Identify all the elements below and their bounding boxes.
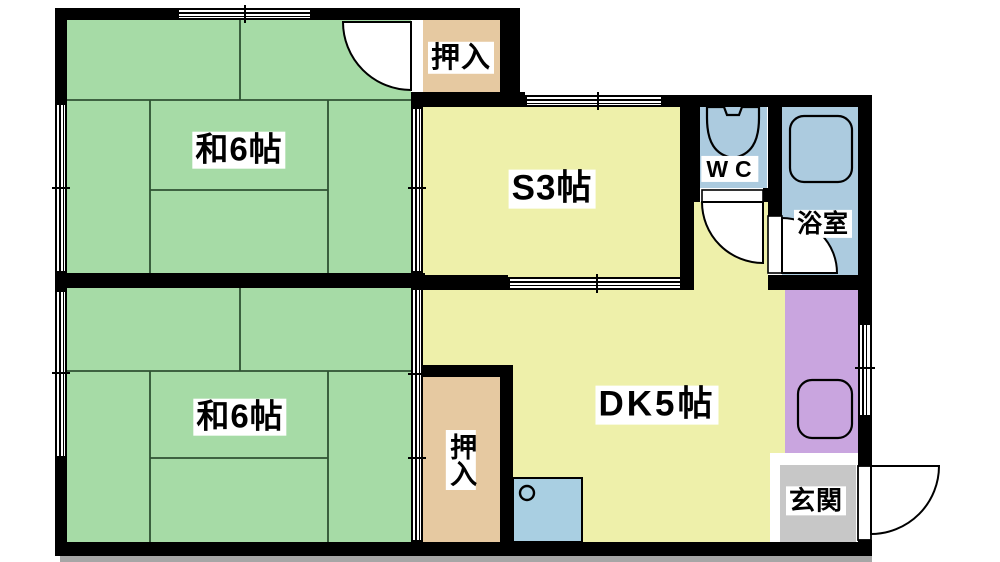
lower-room-dk-closet-partition: [411, 288, 423, 542]
room-label-closet-lower: 押入: [446, 430, 476, 490]
wall: [55, 542, 865, 556]
room-label-dk: DK5帖: [595, 386, 718, 425]
wall: [411, 92, 525, 107]
toilet-icon: [707, 107, 759, 158]
wall: [768, 275, 872, 290]
wall: [55, 273, 425, 288]
service-dk-partition: [508, 277, 682, 290]
bathtub-icon: [790, 116, 852, 182]
service-room-north-window: [525, 95, 663, 107]
washing-machine-pan-icon: [798, 380, 852, 438]
floor-plan: 和6帖 和6帖 S3帖 DK5帖 押入 押入 WC 浴室 玄関: [0, 0, 1000, 562]
wall: [858, 417, 872, 466]
kitchen-sink-icon: [513, 478, 582, 542]
wall: [680, 202, 694, 290]
room-label-service: S3帖: [509, 170, 596, 209]
wall: [500, 365, 513, 542]
wall: [680, 95, 700, 202]
entrance-door-arc: [871, 466, 939, 534]
wall: [858, 540, 872, 556]
wall: [55, 8, 67, 103]
room-label-washitsu-lower: 和6帖: [193, 399, 286, 436]
closet-door-arc: [343, 22, 411, 90]
utility-east-window: [858, 323, 872, 417]
room-label-wc: WC: [701, 156, 758, 182]
wc-door-panel: [702, 190, 763, 202]
upper-room-service-partition: [411, 107, 423, 273]
entrance-door-panel: [858, 466, 871, 540]
bathroom-door-panel: [768, 216, 782, 273]
wall-shadow: [60, 556, 872, 562]
upper-room-north-window: [177, 8, 312, 20]
upper-room-west-window: [55, 103, 67, 273]
room-label-washitsu-upper: 和6帖: [192, 132, 285, 169]
wall: [423, 275, 508, 290]
room-label-entrance: 玄関: [786, 486, 846, 515]
wc-door-arc: [702, 202, 763, 263]
room-label-closet-upper: 押入: [428, 42, 494, 74]
wall: [768, 95, 782, 216]
room-label-bathroom: 浴室: [794, 210, 852, 238]
lower-room-west-window: [55, 290, 67, 458]
